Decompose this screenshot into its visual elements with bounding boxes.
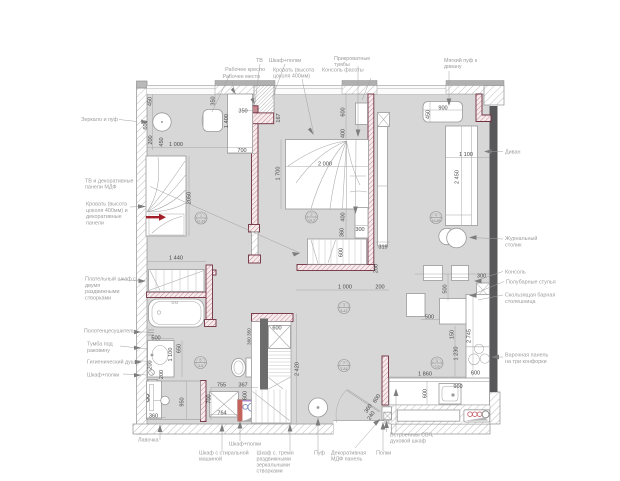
svg-text:350: 350 bbox=[238, 109, 247, 115]
svg-text:350: 350 bbox=[247, 328, 252, 336]
svg-text:600: 600 bbox=[339, 248, 345, 257]
svg-text:300: 300 bbox=[247, 337, 252, 345]
svg-text:Полубарные стулья: Полубарные стулья bbox=[506, 280, 556, 286]
svg-text:Шкаф+полки: Шкаф+полки bbox=[87, 372, 119, 378]
svg-text:200: 200 bbox=[159, 370, 165, 379]
svg-text:1 700: 1 700 bbox=[276, 167, 282, 181]
svg-text:Зеркало и пуф: Зеркало и пуф bbox=[81, 117, 118, 123]
svg-text:600: 600 bbox=[423, 389, 429, 398]
svg-text:2 450: 2 450 bbox=[455, 170, 461, 184]
svg-text:1 230: 1 230 bbox=[454, 347, 460, 361]
svg-text:7: 7 bbox=[343, 362, 345, 366]
svg-text:Полки: Полки bbox=[376, 451, 391, 457]
svg-text:450: 450 bbox=[426, 110, 432, 119]
svg-text:200: 200 bbox=[375, 285, 384, 291]
svg-text:Полотенцесушитель: Полотенцесушитель bbox=[84, 329, 135, 335]
svg-text:Тумба подраковину: Тумба подраковину bbox=[87, 342, 114, 354]
svg-text:700: 700 bbox=[237, 148, 246, 154]
svg-text:2 000: 2 000 bbox=[318, 161, 332, 167]
svg-text:600: 600 bbox=[471, 371, 480, 377]
svg-text:755: 755 bbox=[217, 383, 226, 389]
svg-text:360: 360 bbox=[340, 228, 346, 237]
svg-text:2050: 2050 bbox=[187, 192, 193, 204]
svg-text:200: 200 bbox=[374, 264, 380, 273]
svg-text:400: 400 bbox=[341, 129, 347, 138]
svg-text:400: 400 bbox=[341, 212, 347, 221]
svg-text:Шкаф+полки: Шкаф+полки bbox=[269, 58, 301, 64]
svg-text:319: 319 bbox=[378, 245, 387, 251]
svg-text:7.81: 7.81 bbox=[341, 367, 348, 371]
svg-text:Консоль фасоты: Консоль фасоты bbox=[322, 68, 364, 74]
svg-text:17.81: 17.81 bbox=[197, 220, 206, 224]
svg-text:1 000: 1 000 bbox=[169, 142, 183, 148]
svg-text:764: 764 bbox=[217, 411, 226, 417]
svg-text:Шкаф+полки: Шкаф+полки bbox=[229, 442, 261, 448]
svg-text:700: 700 bbox=[207, 394, 213, 403]
svg-text:1 400: 1 400 bbox=[224, 114, 230, 128]
svg-text:300: 300 bbox=[355, 227, 364, 233]
svg-text:360: 360 bbox=[149, 414, 158, 420]
svg-text:2 745: 2 745 bbox=[467, 329, 473, 343]
svg-text:950: 950 bbox=[180, 397, 186, 406]
svg-text:960: 960 bbox=[453, 384, 462, 390]
svg-text:14.2: 14.2 bbox=[308, 219, 315, 223]
svg-text:367: 367 bbox=[238, 383, 247, 389]
svg-text:4.47: 4.47 bbox=[341, 309, 348, 313]
svg-text:2 420: 2 420 bbox=[295, 362, 301, 376]
svg-text:450: 450 bbox=[148, 97, 154, 106]
svg-text:7.6: 7.6 bbox=[435, 365, 440, 369]
svg-text:13.85: 13.85 bbox=[432, 219, 441, 223]
svg-text:4: 4 bbox=[435, 214, 437, 218]
svg-text:Кровать (высотацоколя 400мм): Кровать (высотацоколя 400мм) bbox=[273, 68, 314, 80]
svg-text:Консоль: Консоль bbox=[505, 270, 526, 276]
svg-text:500: 500 bbox=[425, 315, 434, 321]
svg-text:200: 200 bbox=[148, 360, 154, 369]
svg-text:ТВ: ТВ bbox=[256, 58, 263, 64]
svg-text:Диван: Диван bbox=[505, 150, 520, 156]
svg-text:1 100: 1 100 bbox=[459, 152, 473, 158]
svg-text:1 100: 1 100 bbox=[168, 348, 174, 362]
svg-text:600: 600 bbox=[243, 391, 249, 400]
svg-text:1: 1 bbox=[200, 214, 202, 218]
svg-text:167: 167 bbox=[276, 113, 282, 122]
svg-text:650: 650 bbox=[177, 344, 183, 353]
svg-text:ДекоративнаяМДФ панель: ДекоративнаяМДФ панель bbox=[331, 451, 366, 463]
svg-text:3.9: 3.9 bbox=[198, 364, 203, 368]
svg-text:900: 900 bbox=[438, 106, 447, 112]
svg-text:500: 500 bbox=[151, 336, 160, 342]
svg-text:Гигиенический душ: Гигиенический душ bbox=[87, 359, 135, 366]
svg-text:150: 150 bbox=[450, 330, 456, 339]
svg-text:600: 600 bbox=[341, 107, 347, 116]
svg-text:450: 450 bbox=[159, 137, 165, 146]
svg-text:6: 6 bbox=[200, 359, 202, 363]
svg-text:2: 2 bbox=[311, 213, 313, 217]
svg-text:Пуф: Пуф bbox=[314, 451, 326, 457]
svg-text:3: 3 bbox=[343, 304, 345, 308]
svg-text:1 440: 1 440 bbox=[169, 256, 183, 262]
svg-text:Рабочее место: Рабочее место bbox=[223, 74, 261, 80]
svg-text:1 860: 1 860 bbox=[418, 372, 432, 378]
svg-text:200: 200 bbox=[148, 135, 154, 144]
svg-text:Лавочка: Лавочка bbox=[138, 438, 159, 444]
svg-text:1 000: 1 000 bbox=[338, 285, 352, 291]
svg-text:500: 500 bbox=[443, 284, 449, 293]
svg-text:Рабочее кресло: Рабочее кресло bbox=[225, 67, 265, 73]
svg-text:Варочная панельна три конфорки: Варочная панельна три конфорки bbox=[505, 353, 549, 366]
svg-text:600: 600 bbox=[272, 326, 281, 332]
svg-text:5: 5 bbox=[436, 359, 438, 363]
